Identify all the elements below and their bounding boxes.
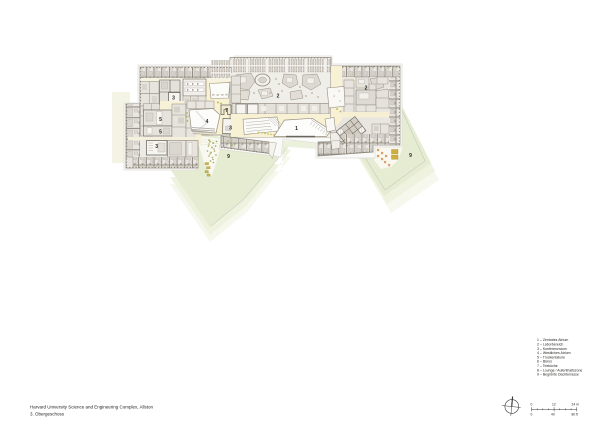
svg-text:4: 4 — [206, 119, 209, 125]
svg-text:3. Obergeschoss: 3. Obergeschoss — [30, 412, 65, 417]
svg-text:0: 0 — [531, 412, 533, 416]
svg-text:2: 2 — [365, 86, 368, 92]
svg-text:40: 40 — [551, 412, 555, 416]
svg-text:0: 0 — [531, 402, 533, 406]
svg-text:80 ft: 80 ft — [572, 412, 578, 416]
svg-text:3: 3 — [172, 95, 175, 101]
svg-text:Harvard University Science and: Harvard University Science and Engineeri… — [30, 405, 154, 410]
svg-text:9: 9 — [227, 154, 230, 160]
svg-text:5: 5 — [159, 117, 162, 123]
svg-text:12: 12 — [552, 402, 556, 406]
svg-text:7: 7 — [225, 108, 228, 114]
svg-text:2: 2 — [277, 94, 280, 100]
svg-text:5: 5 — [159, 130, 162, 136]
svg-text:9: 9 — [409, 153, 412, 159]
svg-text:3: 3 — [155, 144, 158, 150]
svg-text:9 – Begrünte Dachterrasse: 9 – Begrünte Dachterrasse — [537, 373, 579, 377]
svg-text:3: 3 — [229, 125, 232, 131]
svg-text:1: 1 — [295, 126, 298, 132]
svg-text:24 m: 24 m — [572, 402, 580, 406]
